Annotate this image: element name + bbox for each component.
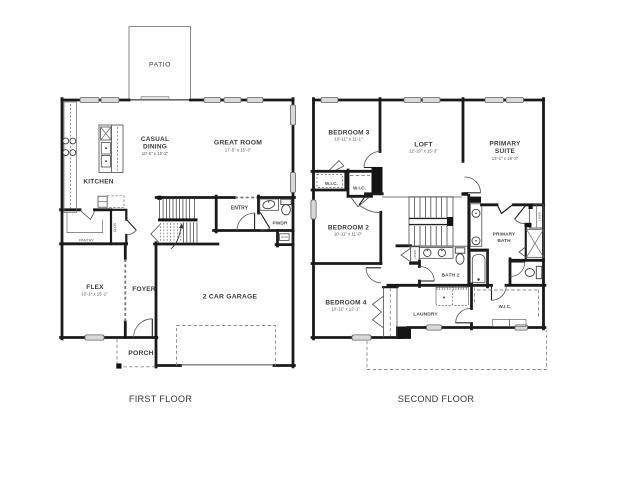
svg-text:SECOND FLOOR: SECOND FLOOR xyxy=(398,394,475,404)
svg-text:10'-1" x 15'-1": 10'-1" x 15'-1" xyxy=(81,291,108,296)
svg-text:W.I.C.: W.I.C. xyxy=(325,181,338,186)
svg-text:LINEN: LINEN xyxy=(413,250,417,259)
svg-text:FOYER: FOYER xyxy=(132,286,155,293)
svg-text:FLEX: FLEX xyxy=(86,284,104,291)
svg-text:DINING: DINING xyxy=(143,144,167,151)
svg-text:GREAT ROOM: GREAT ROOM xyxy=(214,140,262,147)
svg-text:ENTRY: ENTRY xyxy=(231,206,249,212)
svg-text:SUITE: SUITE xyxy=(495,148,516,155)
svg-text:W.I.C.: W.I.C. xyxy=(353,186,366,191)
svg-text:17'-5" x 15'-3": 17'-5" x 15'-3" xyxy=(225,147,252,152)
svg-text:PRIMARY: PRIMARY xyxy=(489,140,521,147)
svg-text:PWDR: PWDR xyxy=(272,220,287,226)
svg-text:BEDROOM 2: BEDROOM 2 xyxy=(328,224,369,231)
svg-text:10'-11" x 12'-1": 10'-11" x 12'-1" xyxy=(331,307,360,312)
svg-text:FIRST FLOOR: FIRST FLOOR xyxy=(129,394,192,404)
svg-text:CASUAL: CASUAL xyxy=(141,136,169,143)
svg-text:PRIMARY: PRIMARY xyxy=(493,231,516,237)
svg-text:LINEN: LINEN xyxy=(537,212,541,221)
svg-text:PANTRY: PANTRY xyxy=(79,239,95,243)
svg-text:BEDROOM 4: BEDROOM 4 xyxy=(325,299,366,306)
svg-text:BATH: BATH xyxy=(497,238,511,244)
svg-text:W.I.C.: W.I.C. xyxy=(498,304,511,309)
svg-text:12'-10" x 15'-3": 12'-10" x 15'-3" xyxy=(409,149,438,154)
svg-text:LOFT: LOFT xyxy=(414,141,433,148)
svg-text:BATH 2: BATH 2 xyxy=(442,272,460,278)
svg-text:PORCH: PORCH xyxy=(128,350,154,357)
svg-text:10'-11" x 11'-0": 10'-11" x 11'-0" xyxy=(334,232,363,237)
svg-text:10'-5" x 15'-3": 10'-5" x 15'-3" xyxy=(142,151,169,156)
svg-text:2 CAR GARAGE: 2 CAR GARAGE xyxy=(203,293,258,300)
svg-text:PATIO: PATIO xyxy=(149,62,171,69)
svg-text:CLOS: CLOS xyxy=(113,222,117,232)
svg-text:BEDROOM 3: BEDROOM 3 xyxy=(328,129,369,136)
svg-text:13'-1" x 16'-3": 13'-1" x 16'-3" xyxy=(492,156,519,161)
svg-text:10'-11" x 11'-1": 10'-11" x 11'-1" xyxy=(334,137,363,142)
svg-text:KITCHEN: KITCHEN xyxy=(83,179,113,186)
svg-text:LAUNDRY: LAUNDRY xyxy=(413,311,438,317)
